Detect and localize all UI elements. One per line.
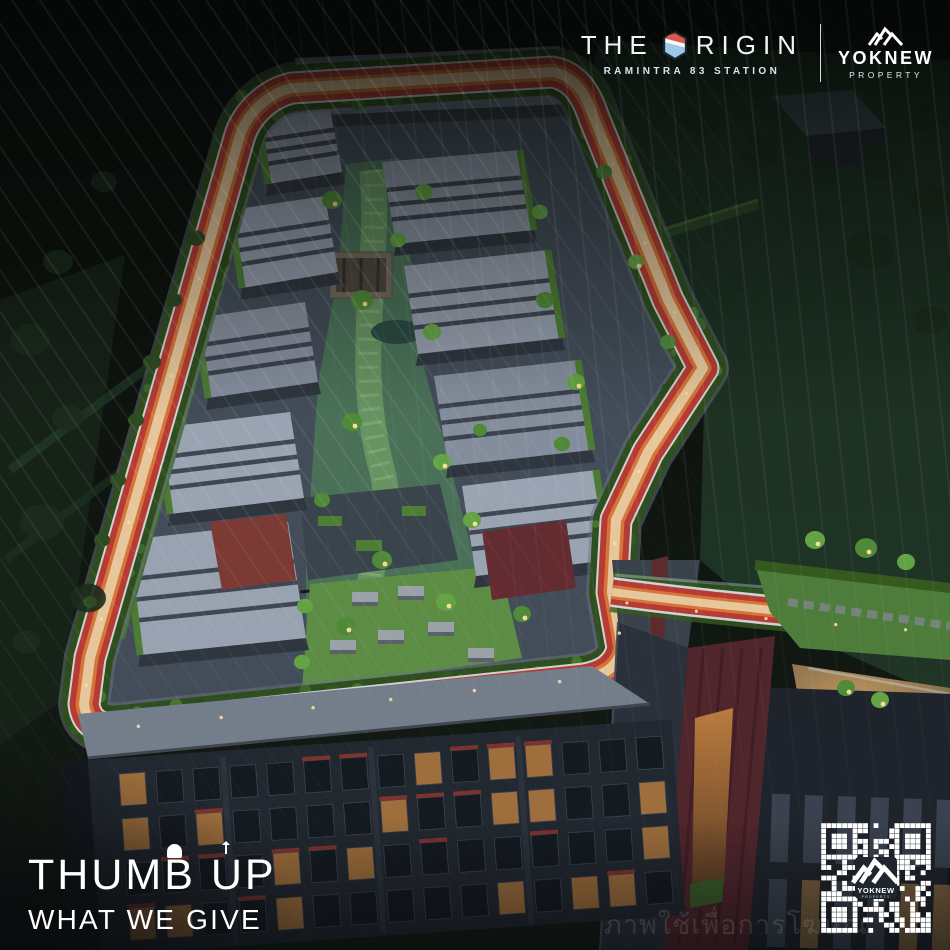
origin-title-prefix: THE	[581, 32, 654, 58]
origin-logo: THE RIGIN RAMINTRA 83 STATION	[581, 30, 803, 77]
yoknew-logo: YOKNEW PROPERTY	[838, 26, 938, 80]
slogan: THUMB UP WHAT WE GIVE	[28, 853, 277, 936]
origin-hexagon-icon	[661, 30, 689, 61]
qr-center-label: YOKNEW	[857, 887, 894, 895]
qr-code: YOKNEW PROPERTY	[821, 823, 931, 933]
promo-image: THE RIGIN RAMINTRA 83 STATION	[0, 0, 950, 950]
yoknew-subtitle: PROPERTY	[849, 70, 923, 80]
logo-bar: THE RIGIN RAMINTRA 83 STATION	[581, 24, 938, 82]
thumbs-up-icon	[167, 844, 182, 858]
origin-title-suffix: RIGIN	[696, 32, 803, 58]
slogan-line1: THUMB UP	[28, 851, 277, 899]
qr-mountain-icon	[821, 857, 931, 886]
qr-center-sublabel: PROPERTY	[862, 895, 891, 899]
up-arrow-icon	[225, 845, 227, 854]
mountain-peaks-icon	[865, 26, 907, 47]
origin-subtitle: RAMINTRA 83 STATION	[604, 66, 781, 77]
qr-center-logo: YOKNEW PROPERTY	[855, 857, 897, 899]
yoknew-name: YOKNEW	[838, 49, 934, 67]
slogan-line2: WHAT WE GIVE	[28, 904, 277, 936]
aerial-render	[0, 0, 950, 950]
logo-divider	[820, 24, 821, 82]
